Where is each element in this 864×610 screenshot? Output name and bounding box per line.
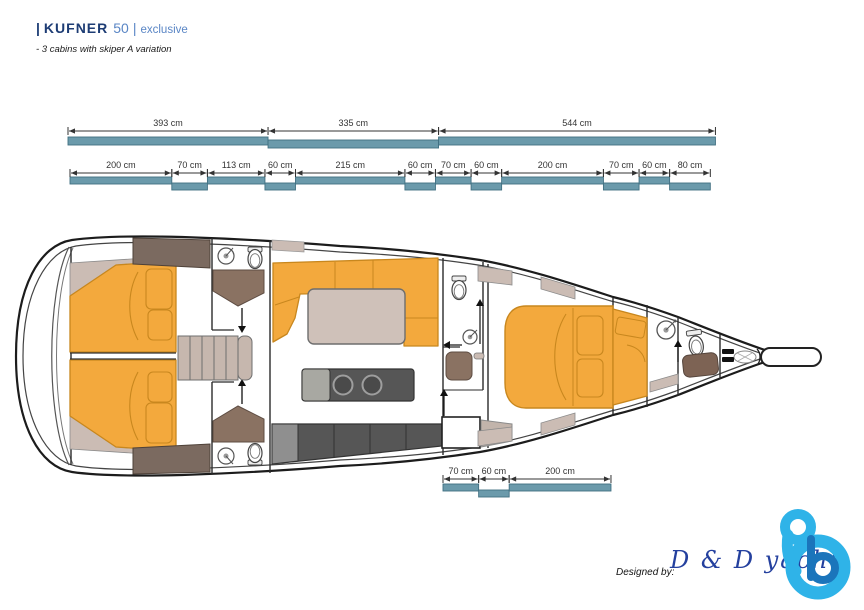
dimension-label: 60 cm (482, 466, 507, 476)
arrowhead-left-icon (510, 476, 516, 481)
arrowhead-left-icon (640, 170, 646, 175)
arrowhead-right-icon (604, 476, 610, 481)
dimension-bar (207, 177, 265, 184)
arrowhead-right-icon (472, 476, 478, 481)
dimension-bar (268, 140, 439, 148)
galley-sink-icon (363, 376, 382, 395)
logo-b-bowl (811, 556, 835, 580)
dimension-label: 60 cm (642, 160, 667, 170)
faucet-knob (674, 320, 677, 323)
arrowhead-left-icon (173, 170, 179, 175)
dimension-label: 70 cm (177, 160, 202, 170)
dimension-bar (70, 177, 172, 184)
stair-step (238, 336, 252, 380)
dimension-row-cockpit: 70 cm60 cm200 cm (443, 466, 611, 497)
dimension-label: 70 cm (441, 160, 466, 170)
arrowhead-left-icon (406, 170, 412, 175)
handle (474, 353, 484, 359)
dimension-bar (295, 177, 404, 184)
arrowhead-right-icon (428, 170, 434, 175)
dimension-label: 215 cm (335, 160, 365, 170)
dimension-label: 70 cm (609, 160, 634, 170)
dimension-label: 335 cm (339, 118, 369, 128)
arrowhead-right-icon (495, 170, 501, 175)
galley-sink-icon (334, 376, 353, 395)
dimension-bar (68, 137, 268, 145)
brochure-page: |KUFNER50|exclusive - 3 cabins with skip… (0, 0, 864, 610)
arrowhead-right-icon (288, 170, 294, 175)
stair-step (178, 336, 190, 380)
shower-seat (446, 352, 472, 380)
pillow (577, 359, 603, 397)
pillow (577, 316, 603, 355)
arrowhead-right-icon (632, 170, 638, 175)
dimension-bar (265, 183, 296, 190)
pillow (146, 403, 172, 443)
dimension-bar (502, 177, 604, 184)
dimension-bar (439, 137, 716, 145)
arrowhead-right-icon (464, 170, 470, 175)
arrowhead-left-icon (480, 476, 486, 481)
dimension-bar (435, 177, 471, 184)
dimension-label: 200 cm (545, 466, 575, 476)
dimension-bar (670, 183, 711, 190)
pillow (148, 310, 172, 340)
arrowhead-right-icon (703, 170, 709, 175)
stair-step (202, 336, 214, 380)
toilet-icon (248, 247, 262, 269)
dimension-bar (471, 183, 502, 190)
arrowhead-right-icon (261, 128, 267, 133)
dimension-label: 60 cm (408, 160, 433, 170)
shelf (272, 240, 304, 252)
dimension-label: 200 cm (538, 160, 568, 170)
arrowhead-right-icon (596, 170, 602, 175)
arrowhead-left-icon (208, 170, 214, 175)
arrowhead-left-icon (269, 128, 275, 133)
dimension-bar (603, 183, 639, 190)
dimension-bar (443, 484, 479, 491)
windlass-bar (722, 349, 734, 354)
galley-island-end (302, 369, 330, 401)
wardrobe (133, 238, 210, 268)
toilet-icon (248, 444, 262, 466)
arrowhead-left-icon (440, 128, 446, 133)
salon-table (308, 289, 405, 344)
windlass-bar (722, 357, 734, 362)
arrowhead-left-icon (436, 170, 442, 175)
dimension-label: 200 cm (106, 160, 136, 170)
dimension-row-upper-detail: 200 cm70 cm113 cm60 cm215 cm60 cm70 cm60… (70, 160, 710, 190)
stair-step (226, 336, 238, 380)
arrowhead-right-icon (165, 170, 171, 175)
nav-table (442, 417, 480, 448)
arrowhead-left-icon (604, 170, 610, 175)
dimension-label: 70 cm (449, 466, 474, 476)
dimension-label: 60 cm (474, 160, 499, 170)
bowsprit (761, 348, 821, 366)
arrowhead-right-icon (200, 170, 206, 175)
bath-mat (682, 352, 719, 378)
dimension-label: 393 cm (153, 118, 183, 128)
dimension-label: 80 cm (678, 160, 703, 170)
arrowhead-left-icon (71, 170, 77, 175)
arrowhead-left-icon (444, 476, 450, 481)
dimension-bar (639, 177, 670, 184)
dimension-label: 60 cm (268, 160, 293, 170)
dimension-bar (172, 183, 208, 190)
designed-by-label: Designed by: (616, 567, 674, 578)
wardrobe (133, 444, 210, 474)
arrowhead-left-icon (296, 170, 302, 175)
stair-step (214, 336, 226, 380)
arrowhead-right-icon (663, 170, 669, 175)
dimension-bar (509, 484, 611, 491)
dimension-bar (479, 490, 510, 497)
stair-step (190, 336, 202, 380)
arrowhead-left-icon (266, 170, 272, 175)
dimension-label: 544 cm (562, 118, 592, 128)
arrowhead-right-icon (398, 170, 404, 175)
arrowhead-left-icon (671, 170, 677, 175)
dimension-bar (405, 183, 436, 190)
dimension-row-upper-overall: 393 cm335 cm544 cm (68, 118, 715, 148)
deck-plan-drawing: 393 cm335 cm544 cm200 cm70 cm113 cm60 cm… (0, 0, 864, 610)
companionway-stairs (178, 336, 252, 380)
toilet-icon (452, 276, 466, 300)
pillow (146, 269, 172, 309)
arrowhead-left-icon (472, 170, 478, 175)
studio-logo (758, 505, 864, 605)
arrowhead-right-icon (432, 128, 438, 133)
arrowhead-left-icon (503, 170, 509, 175)
pillow (148, 372, 172, 402)
arrowhead-right-icon (502, 476, 508, 481)
dimension-label: 113 cm (222, 160, 251, 170)
arrowhead-right-icon (708, 128, 714, 133)
arrowhead-right-icon (258, 170, 264, 175)
galley-counter-end (272, 424, 298, 464)
arrowhead-left-icon (69, 128, 75, 133)
